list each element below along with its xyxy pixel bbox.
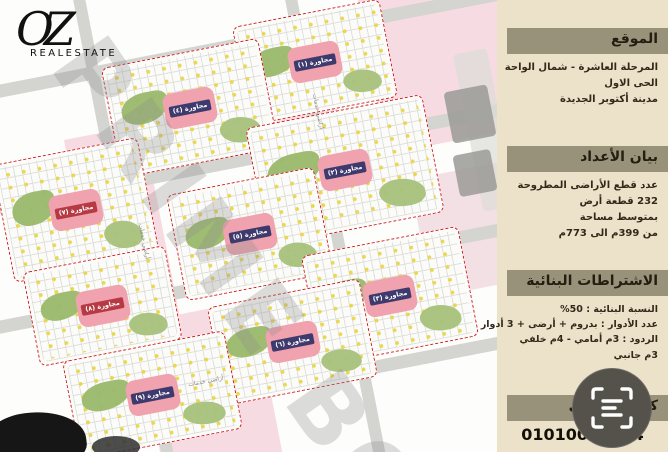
neighborhood-label: مجاورة (٣) bbox=[368, 287, 412, 306]
section-body-building-rules: النسبة البنائية : 50% عدد الأدوار : بدرو… bbox=[497, 296, 668, 363]
building-rule-line: 3م جانبي bbox=[503, 348, 658, 363]
counts-line: عدد قطع الأراضى المطروحة bbox=[503, 178, 658, 194]
logo-monogram: OZ bbox=[16, 6, 117, 52]
flyer-canvas: مجاورة (١) مجاورة (٤) مجاورة (٢) bbox=[0, 0, 668, 452]
section-header-counts: بيان الأعداد bbox=[507, 146, 668, 172]
neighborhood-label: مجاورة (١) bbox=[293, 53, 337, 72]
neighborhood-label: مجاورة (٧) bbox=[54, 201, 98, 220]
section-header-building-rules: الاشتراطات البنائية bbox=[507, 270, 668, 296]
counts-line: من 399م الى 773م bbox=[503, 226, 658, 242]
logo-tagline: REALESTATE bbox=[30, 48, 117, 59]
qr-scan-glyph bbox=[589, 385, 635, 431]
neighborhood-label: مجاورة (٨) bbox=[80, 297, 124, 316]
building-rule-line: عدد الأدوار : بدروم + أرضى + 3 أدوار bbox=[503, 317, 658, 332]
ink-blotch bbox=[92, 436, 140, 452]
building-block bbox=[452, 149, 497, 197]
counts-line: بمتوسط مساحة bbox=[503, 210, 658, 226]
section-header-location: الموقع bbox=[507, 28, 668, 54]
neighborhood-label: مجاورة (٢) bbox=[323, 161, 367, 180]
section-body-counts: عدد قطع الأراضى المطروحة 232 قطعة أرض بم… bbox=[497, 172, 668, 242]
brand-logo: OZ REALESTATE bbox=[16, 6, 117, 59]
building-rule-line: النسبة البنائية : 50% bbox=[503, 302, 658, 317]
location-line: الحى الاول bbox=[503, 76, 658, 92]
qr-scan-icon bbox=[572, 368, 652, 448]
location-line: المرحلة العاشرة - شمال الواحة bbox=[503, 60, 658, 76]
counts-line: 232 قطعة أرض bbox=[503, 194, 658, 210]
building-rule-line: الردود : 3م أمامي - 4م خلفي bbox=[503, 332, 658, 347]
section-body-location: المرحلة العاشرة - شمال الواحة الحى الاول… bbox=[497, 54, 668, 108]
master-plan-map: مجاورة (١) مجاورة (٤) مجاورة (٢) bbox=[0, 0, 497, 452]
location-line: مدينة أكتوبر الجديدة bbox=[503, 92, 658, 108]
neighborhood-label: مجاورة (٩) bbox=[130, 386, 174, 405]
